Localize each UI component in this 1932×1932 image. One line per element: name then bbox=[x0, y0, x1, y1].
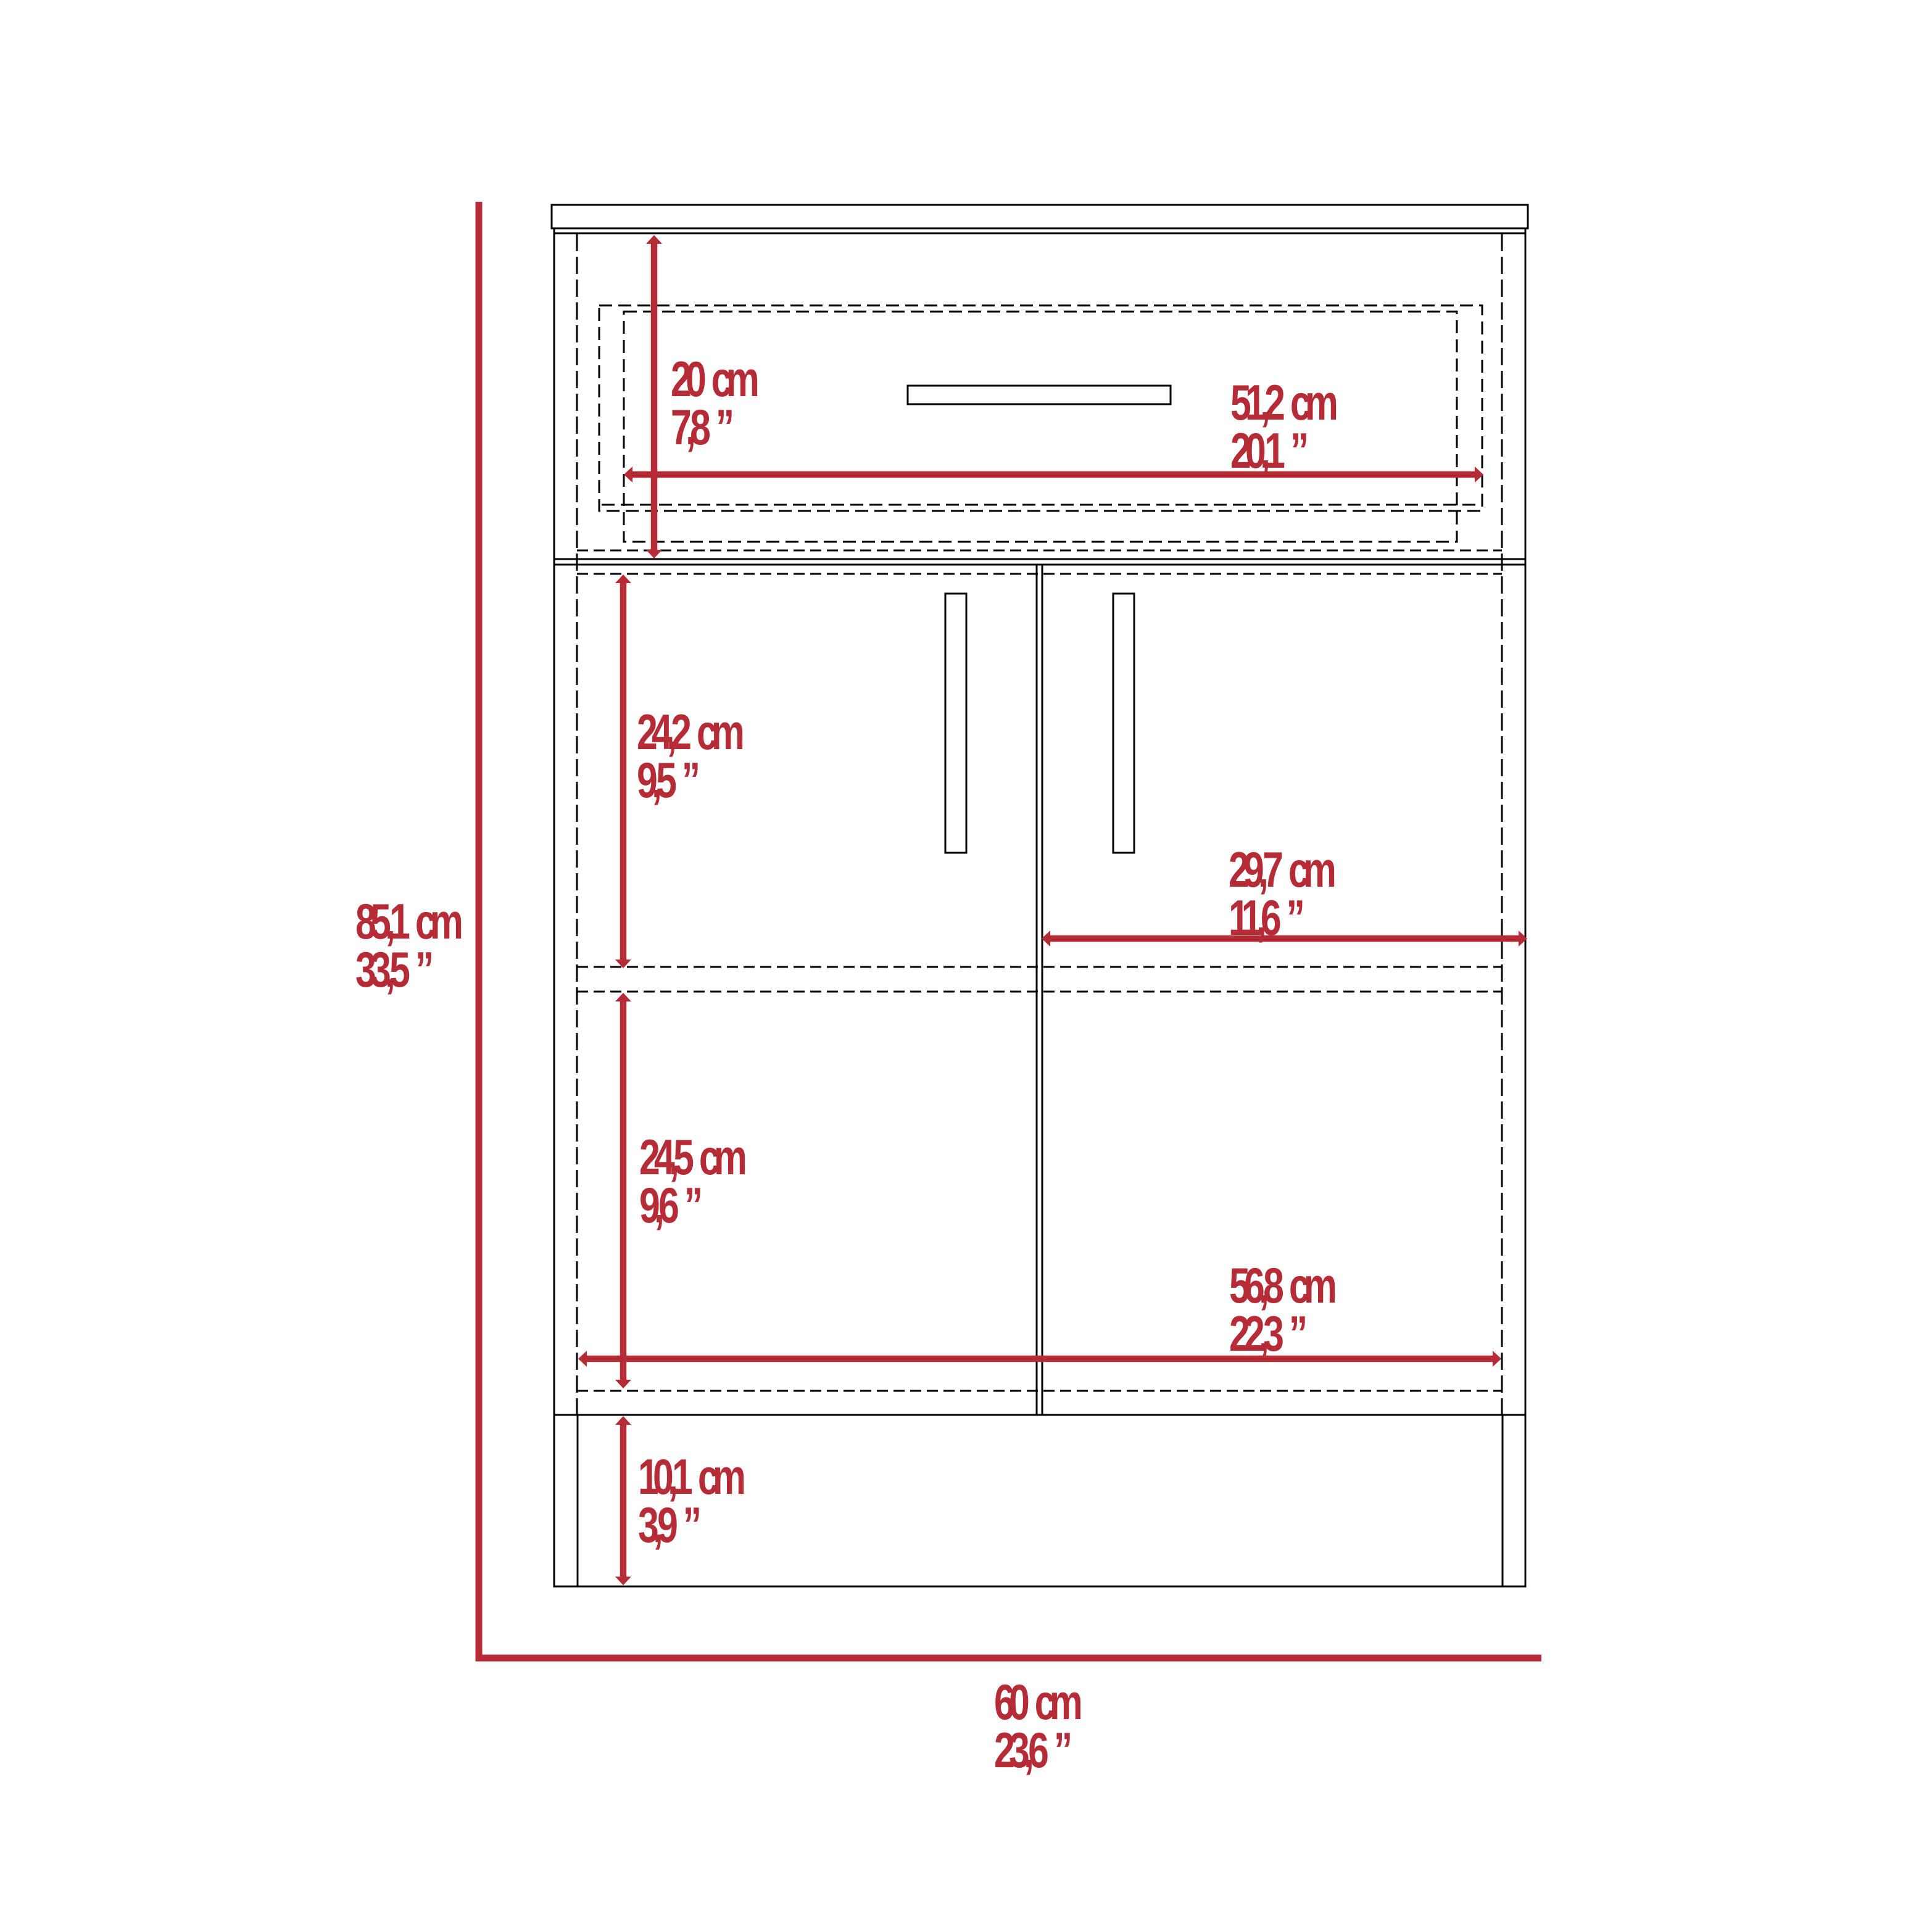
svg-text:20,1 ”: 20,1 ” bbox=[1230, 423, 1306, 479]
svg-text:85,1 cm: 85,1 cm bbox=[355, 894, 462, 950]
svg-text:33,5 ”: 33,5 ” bbox=[355, 942, 431, 998]
svg-text:23,6 ”: 23,6 ” bbox=[994, 1723, 1070, 1779]
svg-text:3,9 ”: 3,9 ” bbox=[638, 1498, 699, 1554]
svg-text:10,1 cm: 10,1 cm bbox=[638, 1449, 744, 1506]
svg-text:22,3 ”: 22,3 ” bbox=[1229, 1306, 1305, 1362]
svg-text:56,8 cm: 56,8 cm bbox=[1229, 1258, 1335, 1314]
svg-text:60 cm: 60 cm bbox=[994, 1675, 1081, 1731]
svg-text:9,6 ”: 9,6 ” bbox=[639, 1178, 700, 1234]
svg-text:24,5 cm: 24,5 cm bbox=[639, 1130, 745, 1186]
svg-text:51,2 cm: 51,2 cm bbox=[1230, 375, 1337, 431]
svg-text:29,7 cm: 29,7 cm bbox=[1229, 842, 1335, 898]
svg-text:9,5 ”: 9,5 ” bbox=[637, 753, 698, 809]
svg-text:20 cm: 20 cm bbox=[671, 352, 758, 408]
svg-text:7,8 ”: 7,8 ” bbox=[671, 400, 732, 456]
svg-text:24,2 cm: 24,2 cm bbox=[637, 705, 743, 761]
svg-text:11,6 ”: 11,6 ” bbox=[1229, 890, 1303, 947]
